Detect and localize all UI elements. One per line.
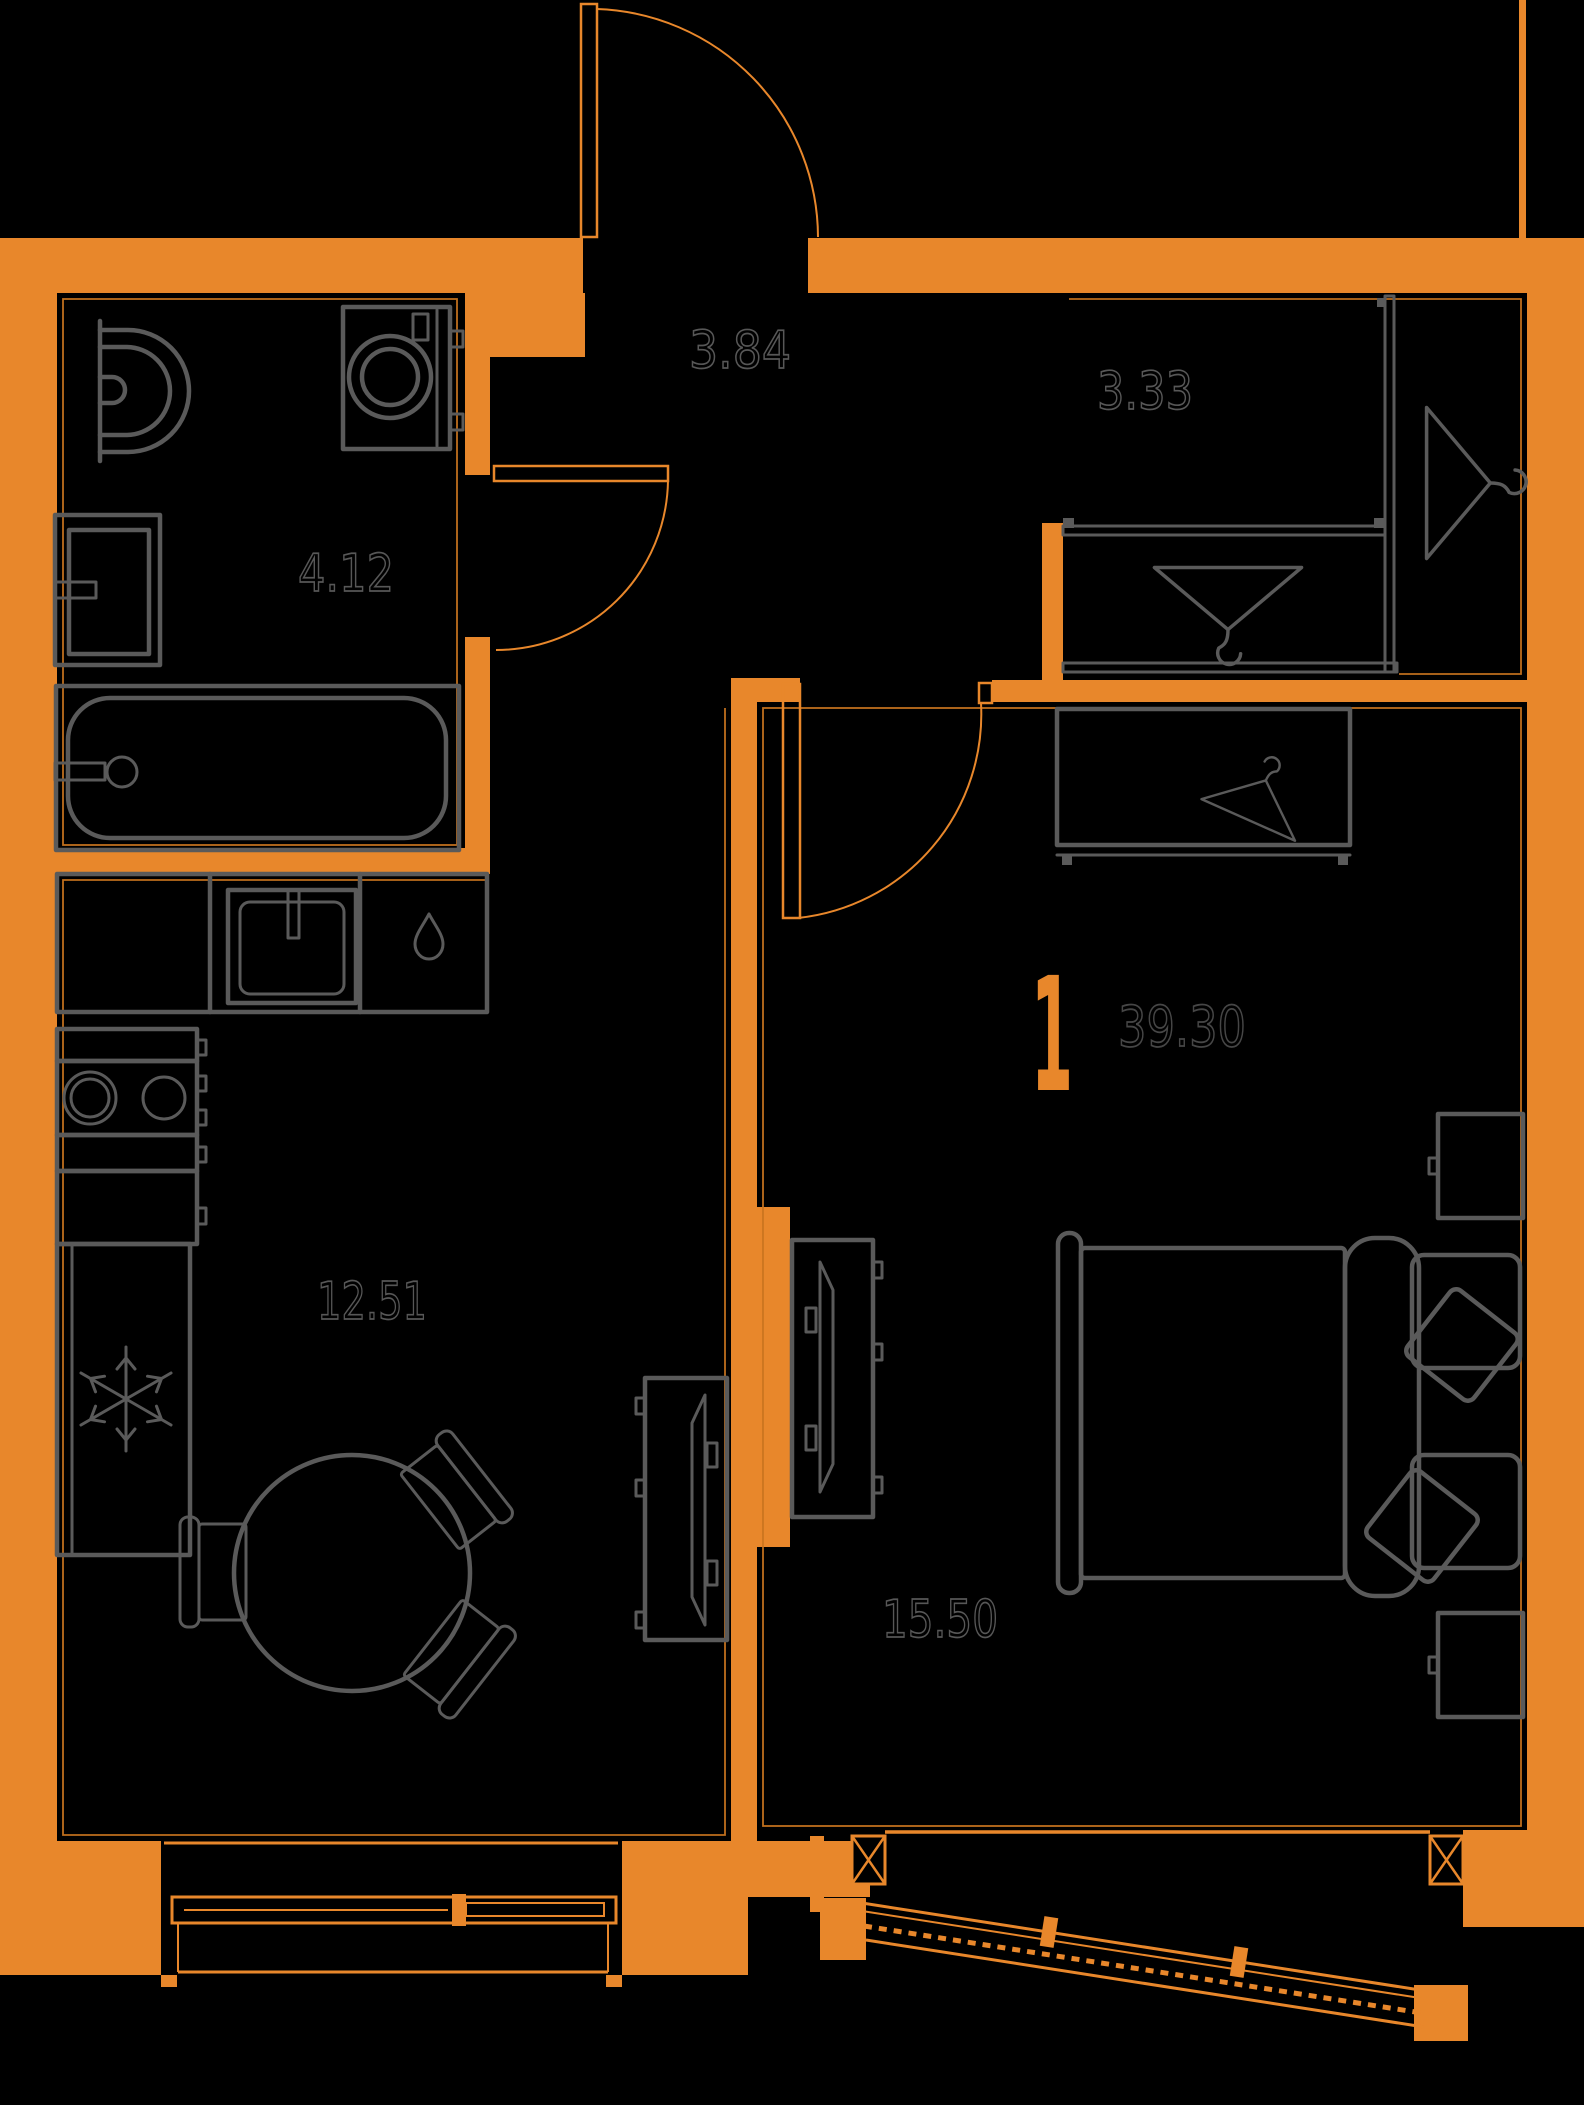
hanger-icon [1201, 737, 1322, 840]
plan-title: 1 39.30 [1031, 944, 1246, 1128]
hanger-icon [1154, 568, 1301, 665]
washing-machine-icon [343, 307, 463, 449]
bathroom-area-label: 4.12 [298, 544, 394, 604]
wardrobe-interior [1063, 296, 1526, 672]
hanger-icon [1427, 407, 1526, 558]
kitchen-sink-icon [228, 890, 356, 1003]
kitchen-tv-stand [636, 1378, 727, 1640]
wall-inset-outlines [63, 299, 1521, 1835]
bedroom-door [783, 683, 992, 918]
walls [0, 0, 1584, 1987]
nightstand [1429, 1114, 1523, 1218]
bedroom-tv-stand [792, 1240, 882, 1517]
wardrobe-area-label: 3.33 [1097, 362, 1193, 422]
nightstand [1429, 1613, 1523, 1717]
snowflake-icon [81, 1347, 171, 1451]
floor-plan: 3.84 3.33 4.12 12.51 15.50 1 39.30 [0, 0, 1584, 2105]
bathtub-icon [55, 686, 459, 850]
kitchen-counter [57, 874, 487, 1012]
pillow-icon [1363, 1455, 1520, 1585]
bedroom-window [852, 1832, 1463, 1884]
total-area-label: 39.30 [1118, 995, 1246, 1060]
balcony-railing [810, 1836, 1468, 2041]
chair-icon [399, 1594, 519, 1721]
bathroom-sink-icon [55, 515, 160, 665]
stove-icon [57, 1029, 206, 1244]
bathroom-door [494, 466, 668, 650]
toilet-icon [100, 321, 189, 461]
fridge-icon [57, 1244, 190, 1555]
water-drop-icon [415, 914, 443, 959]
bedroom-area-label: 15.50 [882, 1590, 998, 1650]
bedroom-closet [1057, 709, 1350, 865]
unit-rooms-count: 1 [1031, 944, 1073, 1128]
kitchen-area-label: 12.51 [317, 1272, 427, 1332]
chair-icon [396, 1428, 516, 1555]
hallway-area-label: 3.84 [689, 321, 791, 381]
bed [1058, 1233, 1521, 1596]
dining-table [180, 1428, 519, 1722]
entrance-door [581, 4, 818, 237]
kitchen-window [164, 1843, 618, 1972]
